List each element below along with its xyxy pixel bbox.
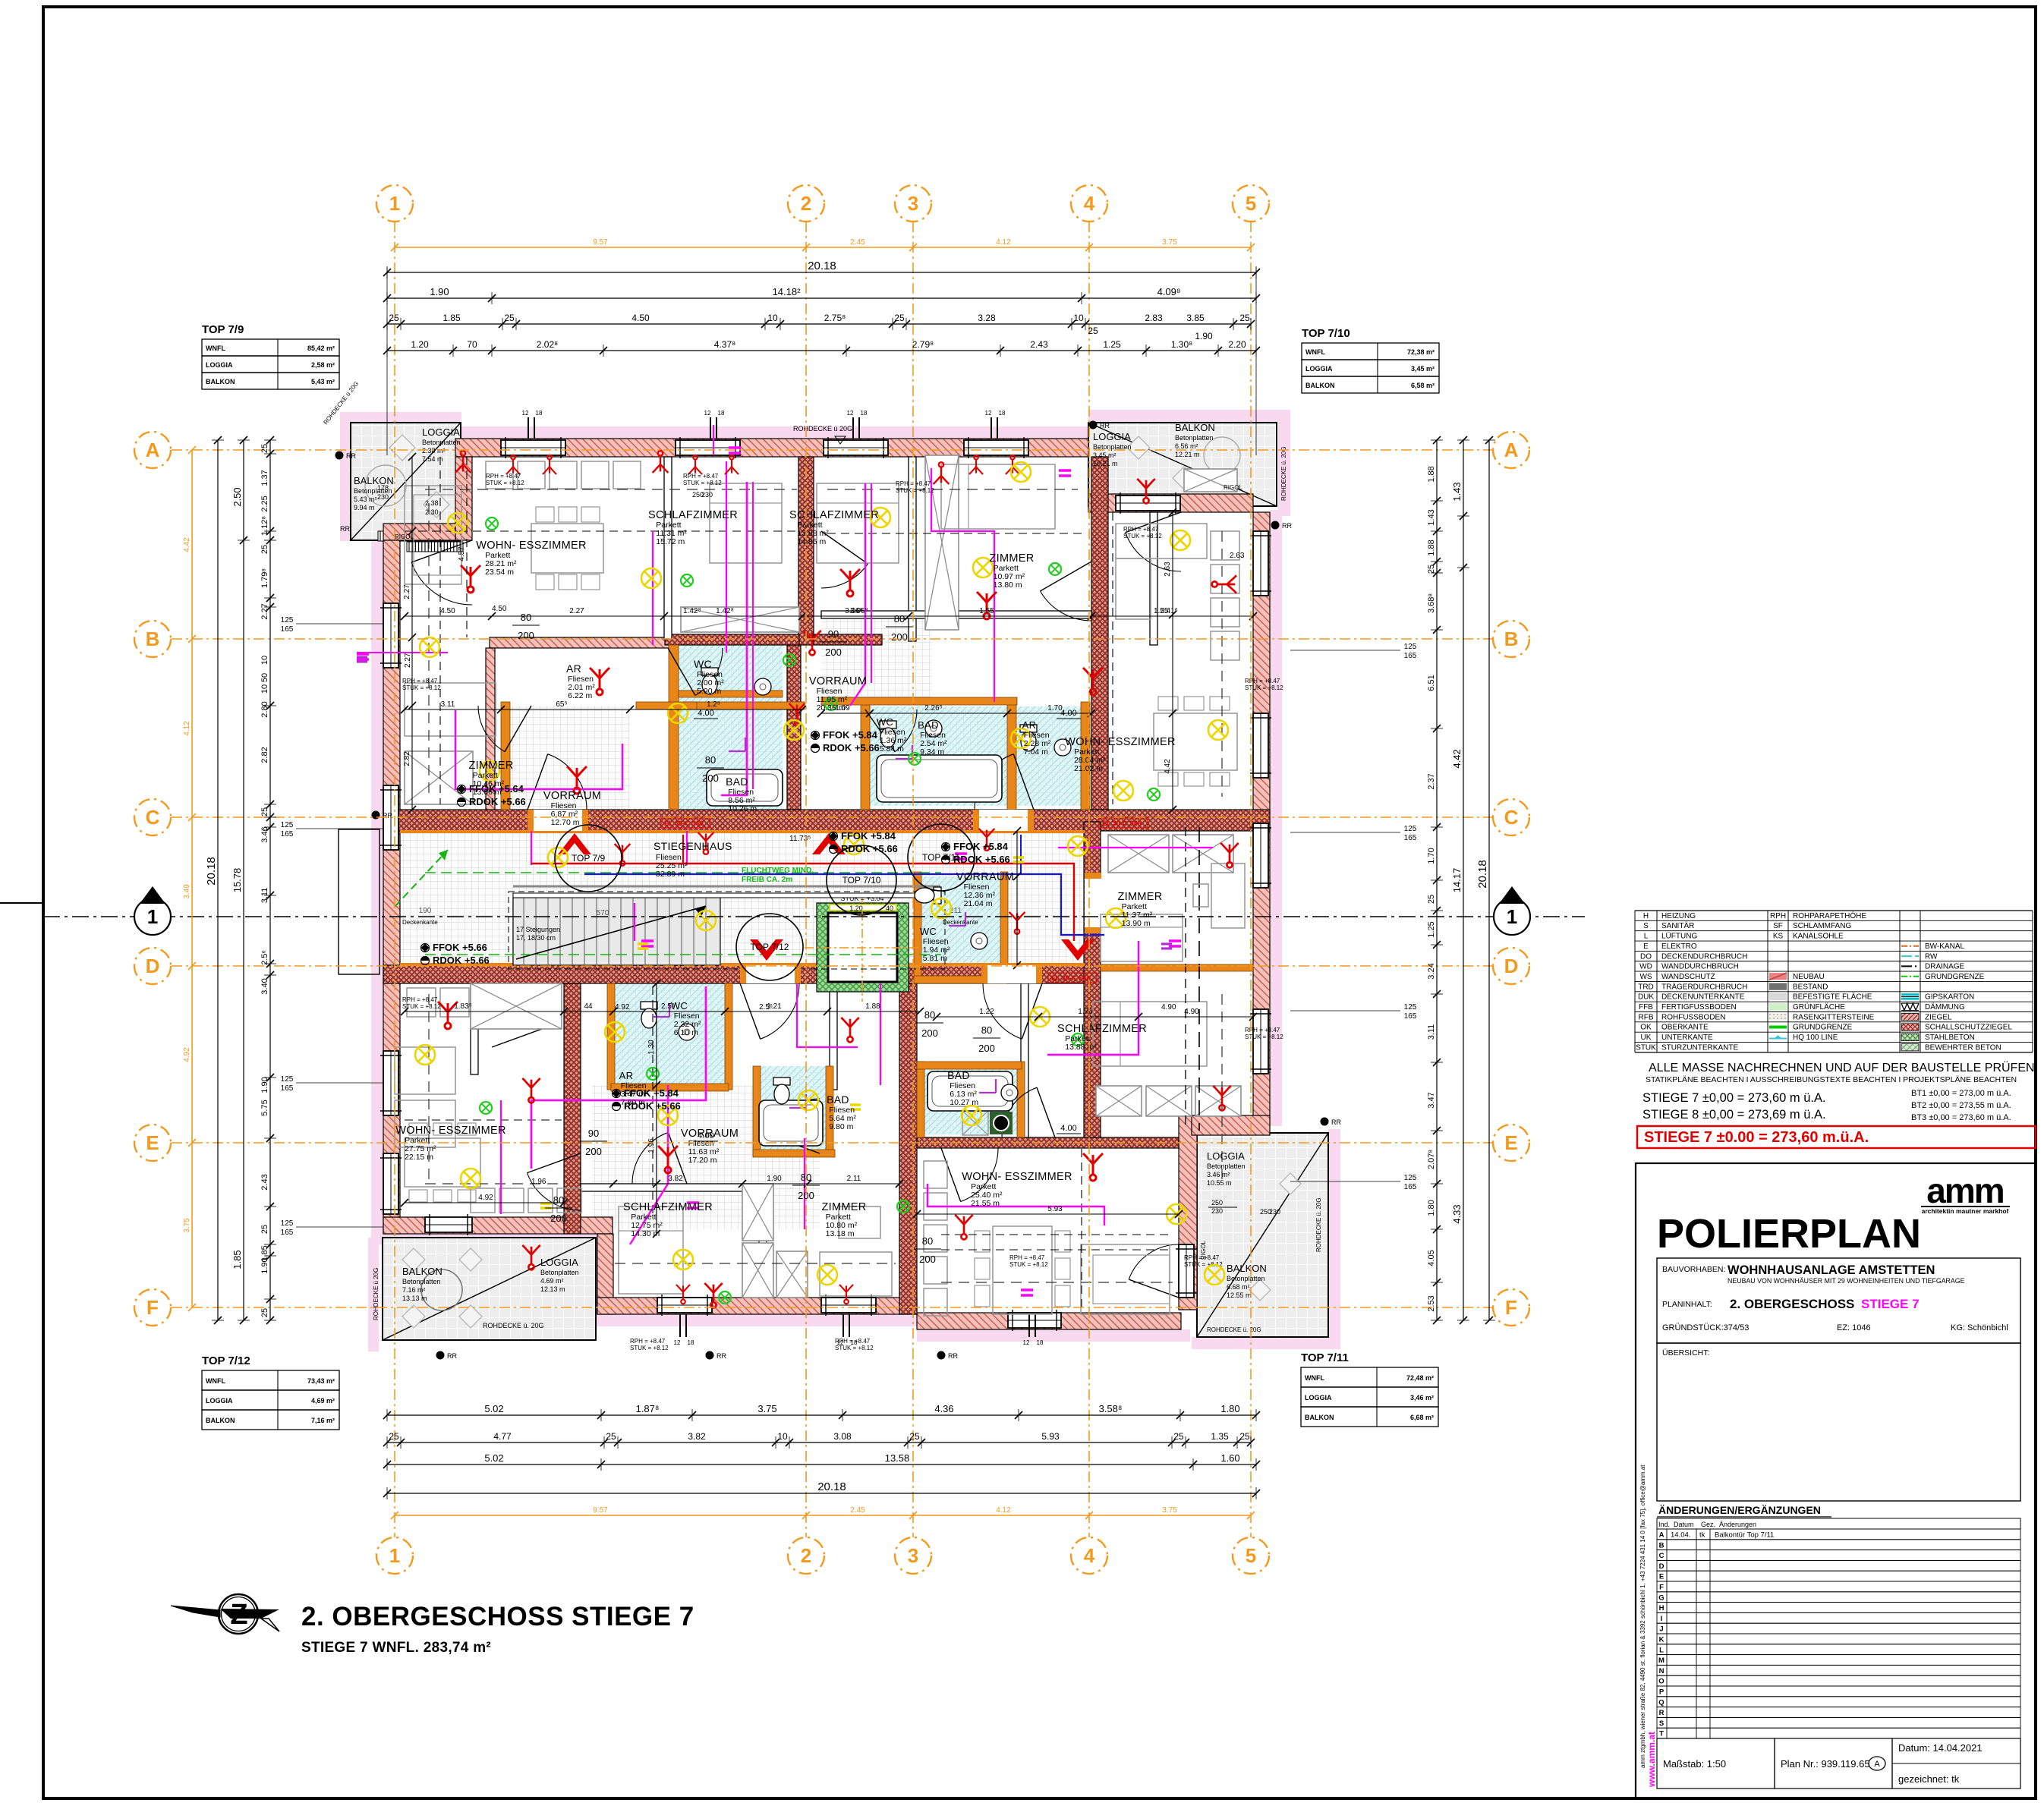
svg-text:12: 12 bbox=[1023, 1339, 1030, 1346]
svg-text:1.88: 1.88 bbox=[865, 1002, 880, 1011]
svg-text:RDOK +5.66: RDOK +5.66 bbox=[624, 1100, 681, 1112]
svg-text:STUK: STUK bbox=[1636, 1043, 1656, 1052]
svg-text:200: 200 bbox=[585, 1146, 602, 1157]
svg-text:TOP 7/12: TOP 7/12 bbox=[202, 1354, 250, 1367]
svg-text:HEIZUNG: HEIZUNG bbox=[1661, 912, 1696, 920]
svg-text:2.38: 2.38 bbox=[425, 499, 439, 507]
svg-text:F: F bbox=[1505, 1296, 1517, 1319]
svg-text:2.26⁵: 2.26⁵ bbox=[924, 704, 943, 713]
svg-text:PLANINHALT:: PLANINHALT: bbox=[1662, 1300, 1712, 1309]
svg-text:6,58 m²: 6,58 m² bbox=[1411, 382, 1435, 389]
svg-text:WANDDURCHBRUCH: WANDDURCHBRUCH bbox=[1661, 963, 1739, 971]
svg-text:4.92: 4.92 bbox=[615, 1003, 630, 1011]
svg-text:3.82: 3.82 bbox=[688, 1431, 706, 1442]
svg-text:6.10 m: 6.10 m bbox=[674, 1028, 698, 1037]
svg-text:5.93: 5.93 bbox=[1041, 1431, 1060, 1442]
svg-text:STUK = +8.12: STUK = +8.12 bbox=[486, 480, 524, 486]
svg-text:KANALSOHLE: KANALSOHLE bbox=[1793, 933, 1844, 941]
svg-text:STUK = +8.12: STUK = +8.12 bbox=[835, 1345, 874, 1351]
svg-text:2.20: 2.20 bbox=[1228, 339, 1246, 350]
svg-text:6.22 m: 6.22 m bbox=[568, 691, 592, 700]
svg-text:WS: WS bbox=[1639, 973, 1652, 981]
svg-text:65⁵: 65⁵ bbox=[556, 700, 567, 709]
svg-text:Betonplatten: Betonplatten bbox=[1207, 1162, 1246, 1170]
svg-text:5.75: 5.75 bbox=[260, 1100, 269, 1115]
svg-text:WOHNHAUSANLAGE AMSTETTEN: WOHNHAUSANLAGE AMSTETTEN bbox=[1727, 1263, 1935, 1277]
svg-text:6.68 m²: 6.68 m² bbox=[1227, 1283, 1250, 1291]
svg-text:4.12: 4.12 bbox=[996, 238, 1011, 247]
svg-text:4.00: 4.00 bbox=[698, 709, 713, 718]
svg-text:3.82: 3.82 bbox=[668, 1175, 683, 1183]
svg-text:4.12: 4.12 bbox=[183, 721, 191, 736]
svg-text:ROHFUSSBODEN: ROHFUSSBODEN bbox=[1661, 1013, 1725, 1021]
svg-text:M: M bbox=[1658, 1656, 1664, 1665]
svg-text:Balkontür Top 7/11: Balkontür Top 7/11 bbox=[1715, 1531, 1774, 1540]
svg-text:165: 165 bbox=[1404, 652, 1417, 660]
svg-text:RPH = +8.47: RPH = +8.47 bbox=[1245, 1027, 1280, 1033]
svg-text:SANITÄR: SANITÄR bbox=[1661, 921, 1694, 930]
svg-text:S: S bbox=[1659, 1719, 1664, 1728]
svg-text:E: E bbox=[1643, 942, 1649, 951]
svg-text:4.37⁸: 4.37⁸ bbox=[714, 339, 735, 350]
svg-text:3.46: 3.46 bbox=[260, 826, 269, 842]
svg-text:230: 230 bbox=[701, 491, 713, 499]
svg-text:4: 4 bbox=[1084, 192, 1095, 215]
svg-text:RR: RR bbox=[447, 1352, 457, 1360]
svg-text:1.22: 1.22 bbox=[979, 1008, 994, 1016]
svg-text:STIEGE 7 ±0,00 = 273,60 m ü.A.: STIEGE 7 ±0,00 = 273,60 m ü.A. bbox=[1642, 1091, 1826, 1105]
svg-text:5.81 m: 5.81 m bbox=[923, 954, 947, 963]
svg-text:80: 80 bbox=[521, 612, 531, 623]
svg-text:H: H bbox=[1659, 1604, 1664, 1612]
svg-text:5: 5 bbox=[1246, 192, 1256, 215]
svg-text:5.84 m: 5.84 m bbox=[880, 744, 904, 753]
svg-text:WOHN- ESSZIMMER: WOHN- ESSZIMMER bbox=[476, 540, 586, 552]
svg-text:1.42⁸: 1.42⁸ bbox=[683, 607, 701, 615]
svg-text:FFOK +5.84: FFOK +5.84 bbox=[841, 830, 896, 842]
svg-text:A: A bbox=[1874, 1760, 1880, 1769]
svg-text:4.00: 4.00 bbox=[698, 1131, 713, 1140]
svg-text:5.93: 5.93 bbox=[1047, 1205, 1063, 1213]
svg-text:Betonplatten: Betonplatten bbox=[422, 439, 461, 446]
svg-text:RPH = +8.47: RPH = +8.47 bbox=[402, 996, 438, 1003]
svg-text:230: 230 bbox=[1269, 1208, 1280, 1216]
svg-text:125: 125 bbox=[1404, 825, 1417, 833]
svg-text:FFOK +5.84: FFOK +5.84 bbox=[953, 841, 1009, 852]
svg-text:1.90: 1.90 bbox=[260, 1077, 269, 1093]
svg-text:20.18: 20.18 bbox=[1476, 860, 1489, 889]
svg-text:ÄNDERUNGEN/ERGÄNZUNGEN: ÄNDERUNGEN/ERGÄNZUNGEN bbox=[1658, 1504, 1821, 1516]
svg-text:230: 230 bbox=[377, 493, 389, 501]
svg-text:LOGGIA: LOGGIA bbox=[1207, 1150, 1245, 1162]
svg-text:2. OBERGESCHOSS STIEGE 7: 2. OBERGESCHOSS STIEGE 7 bbox=[301, 1602, 694, 1631]
svg-text:14.30 m: 14.30 m bbox=[631, 1229, 660, 1238]
svg-text:1.25: 1.25 bbox=[1103, 339, 1121, 350]
svg-text:23.54 m: 23.54 m bbox=[485, 568, 514, 577]
svg-text:Z: Z bbox=[230, 1599, 247, 1631]
svg-text:2.80: 2.80 bbox=[260, 701, 269, 717]
svg-text:7,16 m²: 7,16 m² bbox=[311, 1417, 335, 1424]
svg-text:1.79⁸: 1.79⁸ bbox=[260, 568, 269, 588]
svg-text:80: 80 bbox=[922, 1235, 933, 1247]
svg-text:RPH = +8.47: RPH = +8.47 bbox=[1123, 526, 1159, 533]
svg-text:WC: WC bbox=[877, 716, 893, 728]
svg-text:165: 165 bbox=[281, 625, 294, 634]
svg-text:A: A bbox=[146, 439, 160, 461]
svg-text:BAD: BAD bbox=[918, 719, 939, 731]
svg-text:BAD: BAD bbox=[947, 1069, 970, 1081]
svg-text:17, 18/30 cm: 17, 18/30 cm bbox=[516, 934, 556, 942]
svg-text:BALKON: BALKON bbox=[206, 378, 235, 385]
svg-text:5,43 m²: 5,43 m² bbox=[311, 378, 335, 385]
svg-text:L: L bbox=[1644, 933, 1649, 941]
svg-text:2.63: 2.63 bbox=[1164, 562, 1172, 577]
svg-text:Betonplatten: Betonplatten bbox=[540, 1269, 579, 1276]
svg-text:BT3 ±0,00 = 273,60 m ü.A.: BT3 ±0,00 = 273,60 m ü.A. bbox=[1911, 1113, 2011, 1122]
svg-text:STIEGENHAUS: STIEGENHAUS bbox=[654, 840, 732, 852]
svg-text:2.43: 2.43 bbox=[260, 1174, 269, 1190]
svg-text:13.90 m: 13.90 m bbox=[1122, 919, 1151, 928]
svg-text:3.85: 3.85 bbox=[1186, 313, 1205, 323]
svg-text:4.33: 4.33 bbox=[1451, 1204, 1463, 1223]
svg-text:E: E bbox=[1659, 1573, 1664, 1581]
svg-text:12: 12 bbox=[704, 410, 711, 417]
svg-text:125: 125 bbox=[1404, 1003, 1417, 1011]
svg-text:4.69 m²: 4.69 m² bbox=[540, 1277, 564, 1285]
svg-text:RIGOL: RIGOL bbox=[1224, 484, 1242, 491]
svg-text:5.43 m²: 5.43 m² bbox=[354, 496, 377, 503]
svg-text:1.83⁵: 1.83⁵ bbox=[454, 1002, 472, 1011]
svg-text:GRÜNDSTÜCK:374/53: GRÜNDSTÜCK:374/53 bbox=[1662, 1323, 1749, 1332]
svg-text:AR: AR bbox=[566, 662, 581, 675]
svg-text:1.30⁸: 1.30⁸ bbox=[1171, 339, 1192, 350]
svg-text:3.68⁸: 3.68⁸ bbox=[1427, 593, 1436, 613]
svg-text:BAD: BAD bbox=[827, 1093, 849, 1106]
svg-text:2.75⁸: 2.75⁸ bbox=[824, 313, 846, 323]
svg-text:TOP 7/10: TOP 7/10 bbox=[1302, 327, 1350, 340]
svg-text:FFOK +5.64: FFOK +5.64 bbox=[469, 783, 524, 794]
svg-text:3.47: 3.47 bbox=[1427, 1092, 1436, 1108]
svg-text:230: 230 bbox=[1211, 1207, 1223, 1215]
svg-text:2.27: 2.27 bbox=[569, 607, 584, 615]
svg-text:RR: RR bbox=[346, 452, 356, 460]
svg-text:12: 12 bbox=[985, 410, 992, 417]
svg-text:72,48 m²: 72,48 m² bbox=[1406, 1374, 1434, 1382]
svg-text:80: 80 bbox=[894, 613, 905, 624]
svg-text:SCHLAFZIMMER: SCHLAFZIMMER bbox=[789, 509, 879, 521]
svg-text:2.50: 2.50 bbox=[231, 487, 243, 506]
svg-text:RR: RR bbox=[383, 812, 392, 820]
svg-text:DECKENDURCHBRUCH: DECKENDURCHBRUCH bbox=[1661, 952, 1747, 961]
svg-text:RR: RR bbox=[717, 1352, 726, 1360]
svg-text:T: T bbox=[1659, 1730, 1664, 1738]
svg-text:RPH = +8.47: RPH = +8.47 bbox=[630, 1338, 666, 1345]
svg-text:P: P bbox=[1659, 1688, 1664, 1697]
svg-text:AR: AR bbox=[1022, 719, 1037, 731]
svg-text:10: 10 bbox=[260, 684, 269, 694]
svg-text:B: B bbox=[1659, 1541, 1664, 1549]
svg-text:1.85: 1.85 bbox=[442, 313, 461, 323]
svg-text:14.85 m: 14.85 m bbox=[797, 537, 826, 546]
svg-text:200: 200 bbox=[825, 647, 842, 658]
svg-text:18: 18 bbox=[536, 410, 543, 417]
svg-text:L: L bbox=[1659, 1646, 1664, 1654]
svg-text:4.50: 4.50 bbox=[440, 607, 455, 615]
svg-text:D: D bbox=[146, 955, 160, 977]
svg-text:FFOK +5.84: FFOK +5.84 bbox=[823, 729, 878, 741]
svg-text:RPH = +8.47: RPH = +8.47 bbox=[1245, 678, 1280, 684]
svg-text:Datum: Datum bbox=[1674, 1521, 1694, 1528]
svg-text:ZIMMER: ZIMMER bbox=[990, 552, 1035, 565]
svg-text:RPH = +8.47: RPH = +8.47 bbox=[486, 473, 521, 480]
svg-text:F: F bbox=[1659, 1584, 1664, 1592]
svg-text:85,42 m²: 85,42 m² bbox=[307, 344, 335, 352]
svg-text:1.42⁸: 1.42⁸ bbox=[716, 607, 734, 615]
svg-text:2.30: 2.30 bbox=[425, 508, 439, 516]
svg-text:18: 18 bbox=[718, 410, 725, 417]
svg-text:14.18²: 14.18² bbox=[773, 286, 802, 297]
svg-text:2.25: 2.25 bbox=[260, 496, 269, 511]
svg-text:1.80: 1.80 bbox=[1220, 1403, 1239, 1414]
svg-text:TOP 7/9: TOP 7/9 bbox=[202, 323, 244, 336]
svg-text:165: 165 bbox=[281, 1084, 294, 1093]
svg-text:ALLE MASSE NACHRECHNEN UND AUF: ALLE MASSE NACHRECHNEN UND AUF DER BAUST… bbox=[1649, 1061, 2038, 1074]
svg-text:WOHN- ESSZIMMER: WOHN- ESSZIMMER bbox=[395, 1125, 505, 1137]
svg-text:BALKON: BALKON bbox=[1175, 422, 1215, 433]
svg-text:4.12: 4.12 bbox=[996, 1506, 1011, 1515]
svg-text:12.70 m: 12.70 m bbox=[551, 818, 580, 827]
svg-text:3.40: 3.40 bbox=[260, 978, 269, 994]
svg-text:RDOK +5.66: RDOK +5.66 bbox=[841, 843, 898, 854]
svg-text:10.26 m: 10.26 m bbox=[728, 804, 757, 813]
svg-text:3: 3 bbox=[908, 192, 918, 215]
svg-text:DO: DO bbox=[1640, 952, 1652, 961]
svg-text:3.75: 3.75 bbox=[1162, 1506, 1177, 1515]
svg-text:WC: WC bbox=[694, 658, 712, 670]
svg-text:3: 3 bbox=[908, 1544, 918, 1567]
svg-text:STAHLBETON: STAHLBETON bbox=[1925, 1033, 1975, 1042]
svg-text:BAUVORHABEN:: BAUVORHABEN: bbox=[1662, 1265, 1725, 1274]
svg-text:2: 2 bbox=[801, 192, 811, 215]
svg-text:5.90 m: 5.90 m bbox=[697, 687, 721, 696]
svg-text:A: A bbox=[1504, 439, 1519, 461]
svg-text:TRD: TRD bbox=[1638, 983, 1654, 991]
svg-text:3.45 m²: 3.45 m² bbox=[1093, 451, 1116, 459]
svg-text:6.56 m²: 6.56 m² bbox=[1175, 442, 1198, 450]
svg-text:1.2⁵: 1.2⁵ bbox=[707, 700, 720, 709]
svg-text:9.94 m: 9.94 m bbox=[354, 504, 375, 511]
svg-text:STIEGE 8 ±0,00 = 273,69 m ü.A.: STIEGE 8 ±0,00 = 273,69 m ü.A. bbox=[1642, 1108, 1826, 1122]
svg-text:12.55 m: 12.55 m bbox=[1227, 1291, 1252, 1299]
svg-text:200: 200 bbox=[891, 631, 908, 643]
svg-text:DÄMMUNG: DÄMMUNG bbox=[1925, 1002, 1965, 1011]
svg-text:Betonplatten: Betonplatten bbox=[1227, 1275, 1265, 1282]
svg-text:200: 200 bbox=[702, 772, 719, 784]
svg-text:2.27: 2.27 bbox=[260, 603, 269, 619]
svg-text:NEUBAU: NEUBAU bbox=[1793, 973, 1825, 981]
svg-text:G: G bbox=[1658, 1593, 1664, 1602]
svg-text:165: 165 bbox=[1404, 1183, 1417, 1191]
svg-text:Maßstab: 1:50: Maßstab: 1:50 bbox=[1663, 1758, 1726, 1770]
svg-text:2.5⁶: 2.5⁶ bbox=[661, 1002, 675, 1011]
svg-text:3.11: 3.11 bbox=[1427, 1024, 1436, 1040]
svg-text:C: C bbox=[1659, 1552, 1664, 1560]
svg-text:25: 25 bbox=[260, 1308, 269, 1317]
svg-text:4.92: 4.92 bbox=[183, 1047, 191, 1062]
svg-text:RIGOL: RIGOL bbox=[395, 533, 414, 540]
svg-text:OK: OK bbox=[1640, 1024, 1652, 1032]
svg-text:KG: Schönbichl: KG: Schönbichl bbox=[1951, 1323, 2008, 1332]
svg-text:11.73⁵: 11.73⁵ bbox=[789, 835, 811, 843]
svg-text:10.55 m: 10.55 m bbox=[1207, 1179, 1232, 1187]
svg-text:J: J bbox=[1659, 1625, 1663, 1634]
svg-text:FFOK +5.84: FFOK +5.84 bbox=[624, 1087, 679, 1099]
svg-text:FERTIGFUSSBODEN: FERTIGFUSSBODEN bbox=[1661, 1003, 1737, 1011]
svg-text:POLIERPLAN: POLIERPLAN bbox=[1657, 1211, 1921, 1257]
svg-text:DUK: DUK bbox=[1638, 993, 1654, 1002]
svg-text:RASENGITTERSTEINE: RASENGITTERSTEINE bbox=[1793, 1013, 1875, 1021]
svg-text:90: 90 bbox=[588, 1128, 599, 1139]
svg-text:2.53: 2.53 bbox=[1427, 1295, 1436, 1311]
svg-text:OBERKANTE: OBERKANTE bbox=[1661, 1024, 1709, 1032]
svg-text:RR: RR bbox=[948, 1352, 958, 1360]
svg-text:14.17: 14.17 bbox=[1451, 868, 1463, 893]
svg-text:32.89 m: 32.89 m bbox=[656, 870, 685, 879]
svg-text:1.70: 1.70 bbox=[1078, 1008, 1093, 1016]
svg-text:21.55 m: 21.55 m bbox=[971, 1199, 1000, 1208]
svg-text:4.05: 4.05 bbox=[1427, 1250, 1436, 1266]
svg-text:1.60: 1.60 bbox=[1220, 1452, 1239, 1464]
svg-text:Deckenkante: Deckenkante bbox=[402, 919, 438, 926]
svg-text:amm ztgmbh, wiener straße 82,: amm ztgmbh, wiener straße 82, 4490 st. f… bbox=[1639, 1465, 1646, 1768]
svg-text:25: 25 bbox=[1173, 1431, 1184, 1442]
svg-text:25: 25 bbox=[1427, 895, 1436, 904]
svg-text:1.90: 1.90 bbox=[767, 1175, 782, 1183]
svg-text:SCHLAFZIMMER: SCHLAFZIMMER bbox=[648, 509, 738, 521]
svg-text:200: 200 bbox=[550, 1213, 567, 1224]
svg-text:KS: KS bbox=[1773, 933, 1784, 941]
svg-text:25: 25 bbox=[1427, 565, 1436, 574]
svg-text:2.83: 2.83 bbox=[1145, 313, 1163, 323]
svg-text:25: 25 bbox=[1088, 326, 1098, 336]
svg-text:25: 25 bbox=[260, 807, 269, 816]
svg-text:SCHLAFZIMMER: SCHLAFZIMMER bbox=[623, 1201, 713, 1213]
svg-text:21.02 m: 21.02 m bbox=[1074, 764, 1103, 773]
svg-text:2.45: 2.45 bbox=[850, 1506, 865, 1515]
svg-text:ZIMMER: ZIMMER bbox=[1118, 891, 1163, 903]
svg-text:LOGGIA: LOGGIA bbox=[540, 1257, 578, 1268]
svg-text:1.25: 1.25 bbox=[1427, 921, 1436, 937]
svg-text:ROHDECKE ü 20G: ROHDECKE ü 20G bbox=[373, 1268, 380, 1320]
svg-text:165: 165 bbox=[281, 830, 294, 838]
svg-text:2.07⁸: 2.07⁸ bbox=[1427, 1150, 1436, 1169]
svg-text:2.43: 2.43 bbox=[1030, 339, 1048, 350]
svg-text:ZIMMER: ZIMMER bbox=[469, 760, 514, 772]
svg-text:B: B bbox=[146, 628, 160, 650]
svg-text:RPH = +8.47: RPH = +8.47 bbox=[683, 473, 719, 480]
svg-text:Betonplatten: Betonplatten bbox=[402, 1278, 441, 1285]
svg-text:RDOK +5.66: RDOK +5.66 bbox=[469, 796, 526, 807]
svg-text:3.11: 3.11 bbox=[260, 888, 269, 904]
svg-text:15.72 m: 15.72 m bbox=[656, 537, 685, 546]
svg-text:1.90: 1.90 bbox=[260, 1257, 269, 1273]
svg-text:BESTAND: BESTAND bbox=[1793, 983, 1828, 991]
svg-text:12: 12 bbox=[522, 410, 529, 417]
svg-text:Gez.: Gez. bbox=[1701, 1521, 1715, 1528]
svg-text:13.13 m: 13.13 m bbox=[402, 1295, 427, 1302]
svg-text:SCHALLSCHUTZZIEGEL: SCHALLSCHUTZZIEGEL bbox=[1925, 1024, 2012, 1032]
svg-text:125: 125 bbox=[281, 1219, 294, 1228]
svg-text:200: 200 bbox=[921, 1027, 938, 1039]
svg-text:15.78: 15.78 bbox=[231, 868, 243, 893]
svg-text:TRÄGERDURCHBRUCH: TRÄGERDURCHBRUCH bbox=[1661, 982, 1747, 991]
svg-text:1.70: 1.70 bbox=[1427, 848, 1436, 864]
svg-text:DRAINAGE: DRAINAGE bbox=[1925, 963, 1965, 971]
svg-text:HQ 100 LINE: HQ 100 LINE bbox=[1793, 1033, 1838, 1042]
svg-text:2: 2 bbox=[801, 1544, 811, 1567]
svg-text:1.55: 1.55 bbox=[979, 607, 994, 615]
svg-text:FREIB CA. 2m: FREIB CA. 2m bbox=[742, 876, 792, 884]
svg-text:5: 5 bbox=[1246, 1544, 1256, 1567]
svg-text:178: 178 bbox=[377, 484, 389, 492]
svg-text:250: 250 bbox=[1211, 1199, 1223, 1207]
svg-text:21.04 m: 21.04 m bbox=[964, 899, 993, 908]
svg-text:165: 165 bbox=[1404, 1012, 1417, 1021]
svg-text:AR: AR bbox=[619, 1070, 634, 1081]
svg-text:3.75: 3.75 bbox=[183, 1218, 191, 1233]
svg-text:4.90: 4.90 bbox=[1184, 1008, 1199, 1016]
svg-text:44: 44 bbox=[584, 1002, 593, 1011]
svg-text:17 Steigungen: 17 Steigungen bbox=[516, 926, 560, 933]
svg-text:25: 25 bbox=[894, 313, 905, 323]
svg-text:ROHDECKE ü. 20G: ROHDECKE ü. 20G bbox=[483, 1322, 544, 1329]
svg-text:SCHLAFZIMMER: SCHLAFZIMMER bbox=[1057, 1023, 1147, 1035]
svg-text:50: 50 bbox=[260, 673, 269, 682]
svg-text:12.21 m: 12.21 m bbox=[1175, 451, 1200, 458]
svg-text:3.06⁸: 3.06⁸ bbox=[845, 607, 863, 615]
svg-text:WNFL: WNFL bbox=[1305, 1374, 1324, 1382]
svg-text:10: 10 bbox=[777, 1431, 788, 1442]
svg-text:3.49: 3.49 bbox=[183, 884, 191, 899]
svg-text:ROHPARAPETHÖHE: ROHPARAPETHÖHE bbox=[1793, 911, 1866, 920]
svg-text:10: 10 bbox=[1073, 313, 1084, 323]
svg-text:SF: SF bbox=[1773, 922, 1783, 930]
svg-text:RPH = +8.47: RPH = +8.47 bbox=[402, 678, 438, 684]
svg-text:ELEKTRO: ELEKTRO bbox=[1661, 942, 1697, 951]
svg-text:STIEGE 7: STIEGE 7 bbox=[1861, 1297, 1920, 1311]
svg-text:9.34 m: 9.34 m bbox=[920, 747, 944, 757]
svg-text:80: 80 bbox=[705, 754, 716, 766]
svg-text:FFOK +5.66: FFOK +5.66 bbox=[433, 942, 487, 953]
svg-text:13.80 m: 13.80 m bbox=[994, 580, 1022, 590]
svg-text:BAD: BAD bbox=[726, 776, 748, 788]
svg-text:9.80 m: 9.80 m bbox=[829, 1122, 853, 1131]
svg-text:20.18: 20.18 bbox=[808, 260, 836, 272]
svg-text:13.18 m: 13.18 m bbox=[826, 1229, 855, 1238]
svg-text:EL 30-C S66: EL 30-C S66 bbox=[1051, 974, 1091, 982]
svg-text:10: 10 bbox=[260, 656, 269, 665]
svg-text:WNFL: WNFL bbox=[1305, 348, 1325, 356]
svg-text:165: 165 bbox=[281, 1229, 294, 1237]
svg-text:200: 200 bbox=[978, 1043, 995, 1054]
svg-text:125: 125 bbox=[281, 616, 294, 624]
svg-text:GIPSKARTON: GIPSKARTON bbox=[1925, 993, 1974, 1002]
svg-text:Plan Nr.: 939.119.65: Plan Nr.: 939.119.65 bbox=[1781, 1758, 1870, 1770]
svg-text:C: C bbox=[146, 806, 160, 829]
svg-text:1.96: 1.96 bbox=[531, 1178, 546, 1186]
svg-text:2.82: 2.82 bbox=[403, 751, 411, 766]
svg-text:D: D bbox=[1504, 955, 1519, 977]
